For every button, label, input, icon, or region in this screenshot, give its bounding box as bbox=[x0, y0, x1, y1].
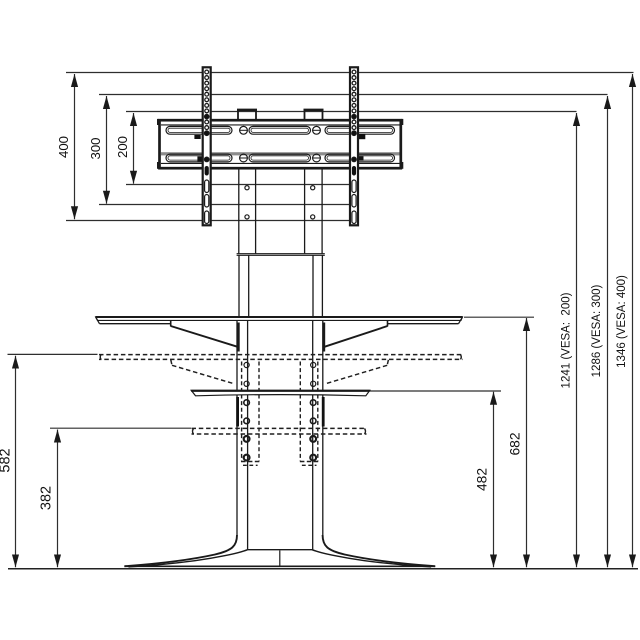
svg-text:682: 682 bbox=[508, 432, 523, 455]
svg-text:1346 (VESA: 400): 1346 (VESA: 400) bbox=[616, 275, 628, 368]
svg-text:400: 400 bbox=[56, 136, 71, 158]
svg-text:1286 (VESA: 300): 1286 (VESA: 300) bbox=[591, 284, 603, 377]
svg-text:200: 200 bbox=[115, 136, 130, 158]
svg-text:582: 582 bbox=[0, 448, 13, 472]
svg-text:1241 (VESA: 200): 1241 (VESA: 200) bbox=[561, 292, 573, 388]
svg-text:382: 382 bbox=[38, 486, 54, 510]
svg-text:300: 300 bbox=[88, 137, 103, 159]
svg-text:482: 482 bbox=[475, 468, 490, 491]
